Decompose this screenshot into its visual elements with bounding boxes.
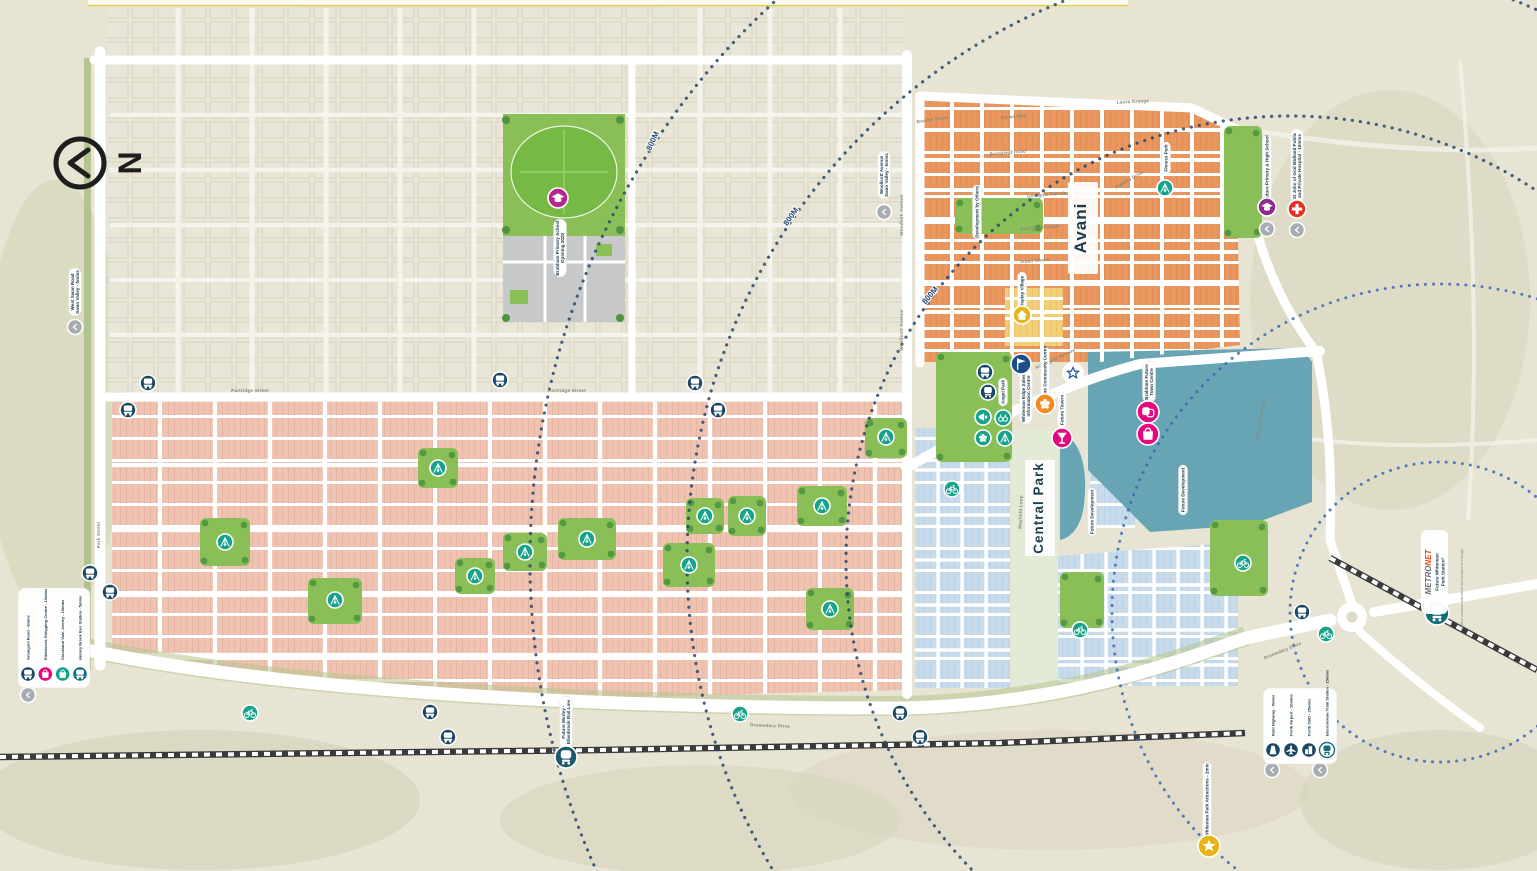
hospital-icon[interactable] bbox=[1288, 200, 1306, 218]
pill-text: Future Tavern bbox=[1060, 395, 1065, 425]
playground-icon[interactable] bbox=[997, 430, 1013, 446]
playground-icon[interactable] bbox=[217, 534, 233, 550]
primary-school-site bbox=[502, 114, 625, 322]
chevron-button[interactable] bbox=[877, 205, 892, 220]
bus-stop-icon[interactable] bbox=[82, 565, 98, 581]
pill-development-by-others[interactable]: Development by Others bbox=[973, 185, 982, 239]
chevron-button[interactable] bbox=[21, 688, 36, 703]
sales-centre-icon[interactable] bbox=[1011, 354, 1031, 374]
chevron-button[interactable] bbox=[1313, 763, 1328, 778]
pill-text: Future Morley - bbox=[561, 705, 566, 739]
bike-path-icon[interactable] bbox=[1235, 555, 1251, 571]
card-row-label: Henley Brook Bus Station - 5mins bbox=[78, 595, 83, 660]
chevron-button[interactable] bbox=[68, 320, 83, 335]
shopping-icon[interactable] bbox=[1137, 423, 1159, 445]
playground-icon[interactable] bbox=[579, 531, 595, 547]
bike-path-icon[interactable] bbox=[732, 706, 748, 722]
left-destinations-card[interactable]: Gnangara Road - 6minsEllenbrook Shopping… bbox=[18, 588, 90, 688]
playground-icon[interactable] bbox=[822, 601, 838, 617]
bus-stop-icon[interactable] bbox=[977, 364, 993, 380]
pill-text: Display Village bbox=[1020, 275, 1025, 308]
station-label-line2: Park Station* bbox=[1441, 557, 1446, 586]
street-label: Woollcott Avenue bbox=[899, 309, 904, 351]
card-row-icon[interactable] bbox=[38, 667, 53, 682]
chevron-button[interactable] bbox=[1290, 223, 1305, 238]
avani-label: Avani bbox=[1068, 182, 1098, 274]
card-row-label: Gnangara Road - 6mins bbox=[26, 614, 31, 660]
playground-icon[interactable] bbox=[878, 429, 894, 445]
card-row-icon[interactable] bbox=[1284, 743, 1299, 758]
card-row-icon[interactable] bbox=[1266, 743, 1281, 758]
pill-text: Woollcott Avenue bbox=[879, 155, 884, 194]
bus-stop-icon[interactable] bbox=[892, 705, 908, 721]
card-row-label: Bassendean Train Station - 15mins bbox=[1325, 669, 1330, 736]
tavern-icon[interactable] bbox=[1052, 428, 1072, 448]
pill-future-primary-high-school[interactable]: Future Primary & High School bbox=[1263, 135, 1272, 201]
chevron-button[interactable] bbox=[1260, 222, 1275, 237]
pill-hospital[interactable]: St John of God Midland Publicand Private… bbox=[1291, 129, 1304, 203]
pill-future-development-1[interactable]: Future Development bbox=[1179, 465, 1188, 515]
playground-icon[interactable] bbox=[681, 557, 697, 573]
bus-stop-icon[interactable] bbox=[1294, 604, 1310, 620]
pill-text: Brabham Primary School bbox=[555, 221, 560, 276]
playground-icon[interactable] bbox=[517, 544, 533, 560]
north-letter: N bbox=[112, 151, 148, 174]
bus-stop-icon[interactable] bbox=[710, 402, 726, 418]
pill-text: and Private Hospital - 10mins bbox=[1297, 134, 1302, 199]
train-stop-icon[interactable] bbox=[980, 384, 996, 400]
card-row-label: Perth Airport - 20mins bbox=[1289, 693, 1294, 736]
pill-woollcott-avenue[interactable]: Woollcott AvenueSwan Valley - 6mins bbox=[878, 151, 891, 199]
pill-text: Ellenbrook Rail Line bbox=[566, 699, 571, 744]
card-row-label: Perth CBD - 25mins bbox=[1307, 698, 1312, 736]
star-outline-icon[interactable] bbox=[1063, 363, 1083, 383]
megaphone-icon[interactable] bbox=[975, 409, 991, 425]
card-row-icon[interactable] bbox=[73, 667, 88, 682]
school-icon[interactable] bbox=[548, 188, 568, 208]
svg-text:Avani: Avani bbox=[1071, 203, 1090, 254]
street-label: Partridge Street bbox=[231, 388, 269, 393]
central-park-label: Central Park bbox=[1025, 460, 1055, 556]
pill-text: Future Development bbox=[1181, 467, 1186, 512]
pocket-park bbox=[1060, 572, 1104, 628]
pill-brabham-primary-school[interactable]: Brabham Primary SchoolOpening 2020 bbox=[554, 219, 567, 277]
card-row-label: Ellenbrook Shopping Centre - 10mins bbox=[43, 588, 48, 660]
pill-morley-ellenbrook-rail[interactable]: Future Morley -Ellenbrook Rail Line bbox=[560, 696, 573, 748]
masterplan-map: 800M 800M 800M Partridge StreetPartridge… bbox=[0, 0, 1537, 871]
card-row-icon[interactable] bbox=[1320, 743, 1335, 758]
pill-sales-centre[interactable]: Whiteman Edge Sales &Information Centre bbox=[1020, 368, 1033, 424]
playground-icon[interactable] bbox=[814, 498, 830, 514]
pocket-park bbox=[1224, 126, 1262, 238]
bus-stop-icon[interactable] bbox=[422, 704, 438, 720]
card-row-label: Stockland Vale, Aveley - 10mins bbox=[60, 599, 65, 660]
card-row-icon[interactable] bbox=[55, 667, 70, 682]
pill-text: Information Centre bbox=[1026, 375, 1031, 417]
svg-text:METRONET: METRONET bbox=[1424, 548, 1433, 594]
metronet-brand-metro: METRO bbox=[1424, 565, 1433, 595]
bus-stop-icon[interactable] bbox=[140, 375, 156, 391]
card-row-icon[interactable] bbox=[21, 667, 36, 682]
street-label: Park Street bbox=[96, 522, 101, 549]
pill-text: Opening 2020 bbox=[560, 232, 565, 263]
roundabout bbox=[1337, 602, 1367, 632]
bike-path-icon[interactable] bbox=[1072, 622, 1088, 638]
rail-line-train-icon[interactable] bbox=[555, 746, 577, 768]
bike-path-icon[interactable] bbox=[242, 705, 258, 721]
station-disclaimer: *Station location indicative and subject… bbox=[1460, 549, 1464, 632]
pill-west-swan-road[interactable]: West Swan RoadSwan Valley - 6mins bbox=[69, 268, 82, 316]
pill-text: Brabham Future bbox=[1144, 364, 1149, 400]
pill-future-development-2[interactable]: Future Development bbox=[1088, 488, 1097, 536]
attractions-star-icon[interactable] bbox=[1198, 835, 1220, 857]
bus-stop-icon[interactable] bbox=[912, 729, 928, 745]
bus-stop-icon[interactable] bbox=[102, 584, 118, 600]
pill-text: Angel Park bbox=[1001, 380, 1006, 404]
pill-whiteman-park-attractions[interactable]: Whiteman Park Attractions - 2min bbox=[1203, 762, 1212, 838]
card-row-label: Reid Highway - 5mins bbox=[1271, 694, 1276, 736]
street-label: Woodlark Avenue bbox=[899, 194, 904, 236]
street-label: Partridge Street bbox=[548, 388, 586, 393]
pill-angel-park[interactable]: Angel Park bbox=[999, 378, 1008, 406]
bike-path-icon[interactable] bbox=[1318, 626, 1334, 642]
bike-path-icon[interactable] bbox=[944, 481, 960, 497]
station-label-line1: Future Whiteman bbox=[1435, 553, 1440, 591]
playground-icon[interactable] bbox=[697, 508, 713, 524]
playground-icon[interactable] bbox=[467, 568, 483, 584]
pill-text: Whiteman Park Attractions - 2min bbox=[1205, 763, 1210, 837]
pill-text: Future Development bbox=[1090, 489, 1095, 534]
card-row-icon[interactable] bbox=[1302, 743, 1317, 758]
future-school-icon[interactable] bbox=[1258, 198, 1276, 216]
binoculars-icon[interactable] bbox=[995, 410, 1011, 426]
garden-icon[interactable] bbox=[975, 430, 991, 446]
bus-stop-icon[interactable] bbox=[492, 372, 508, 388]
pill-future-tavern[interactable]: Future Tavern bbox=[1058, 392, 1067, 428]
map-canvas: 800M 800M 800M Partridge StreetPartridge… bbox=[0, 0, 1537, 871]
display-village-icon[interactable] bbox=[1013, 306, 1031, 324]
playground-icon[interactable] bbox=[327, 592, 343, 608]
pill-text: Town Centre bbox=[1149, 368, 1154, 396]
bus-stop-icon[interactable] bbox=[440, 729, 456, 745]
chevron-button[interactable] bbox=[1265, 763, 1280, 778]
pill-text: Swan Valley - 6mins bbox=[884, 153, 889, 197]
pill-text: Development by Others bbox=[975, 186, 980, 238]
pill-text: St John of God Midland Public bbox=[1292, 132, 1297, 199]
theatre-icon[interactable] bbox=[1137, 401, 1159, 423]
metronet-station-label[interactable]: METRONET Future Whiteman Park Station* bbox=[1421, 530, 1448, 614]
pill-future-town-centre[interactable]: Brabham FutureTown Centre bbox=[1143, 361, 1156, 403]
page-edge-strip bbox=[88, 0, 1128, 6]
pill-fitness-park[interactable]: Fitness Park bbox=[1162, 142, 1171, 174]
pill-text: Future Primary & High School bbox=[1265, 135, 1270, 200]
metronet-brand-net: NET bbox=[1424, 548, 1433, 565]
pill-text: Whiteman Edge Sales & bbox=[1021, 369, 1026, 422]
svg-text:Central Park: Central Park bbox=[1031, 462, 1046, 554]
playground-icon[interactable] bbox=[739, 508, 755, 524]
playground-icon[interactable] bbox=[430, 460, 446, 476]
pill-text: West Swan Road bbox=[70, 273, 75, 310]
bus-stop-icon[interactable] bbox=[120, 402, 136, 418]
pill-text: Swan Valley - 6mins bbox=[75, 270, 80, 314]
community-centre-icon[interactable] bbox=[1035, 394, 1055, 414]
pill-text: Fitness Park bbox=[1164, 144, 1169, 172]
fitness-icon[interactable] bbox=[1157, 180, 1173, 196]
bus-stop-icon[interactable] bbox=[687, 375, 703, 391]
